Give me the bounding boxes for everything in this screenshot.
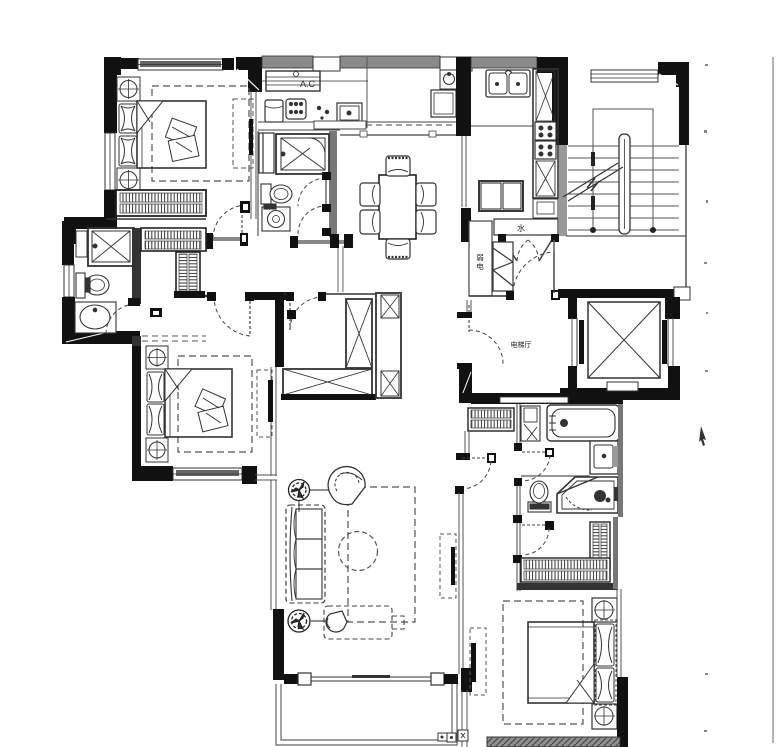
svg-text:电: 电 (476, 261, 484, 271)
svg-text:弱: 弱 (476, 253, 484, 262)
svg-text:水: 水 (517, 223, 525, 233)
svg-text:A.C: A.C (300, 79, 316, 89)
svg-text:电梯厅: 电梯厅 (511, 340, 532, 349)
